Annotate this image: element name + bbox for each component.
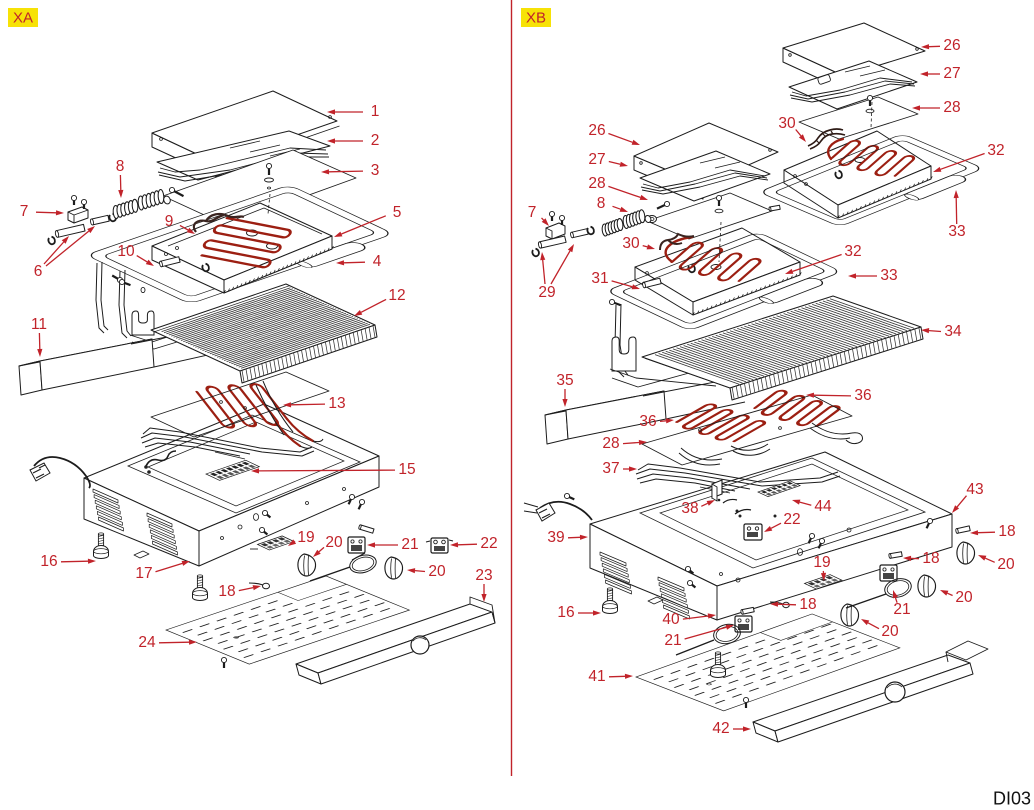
svg-text:28: 28 xyxy=(588,175,605,192)
svg-text:4: 4 xyxy=(373,253,382,270)
svg-text:39: 39 xyxy=(547,529,564,546)
svg-text:20: 20 xyxy=(428,563,446,580)
svg-text:8: 8 xyxy=(116,158,125,175)
svg-text:5: 5 xyxy=(393,204,402,221)
svg-text:35: 35 xyxy=(556,372,573,389)
svg-text:22: 22 xyxy=(480,535,497,552)
svg-text:20: 20 xyxy=(325,534,343,551)
svg-text:XA: XA xyxy=(13,9,33,26)
svg-text:23: 23 xyxy=(475,567,492,584)
svg-text:6: 6 xyxy=(34,263,43,280)
svg-text:41: 41 xyxy=(588,668,605,685)
svg-text:15: 15 xyxy=(398,461,415,478)
svg-text:16: 16 xyxy=(40,553,57,570)
svg-text:32: 32 xyxy=(987,142,1004,159)
svg-text:44: 44 xyxy=(814,498,832,515)
svg-text:32: 32 xyxy=(844,243,861,260)
svg-text:DI03: DI03 xyxy=(993,788,1031,808)
svg-text:16: 16 xyxy=(557,604,574,621)
svg-text:13: 13 xyxy=(328,395,345,412)
svg-text:18: 18 xyxy=(922,550,939,567)
svg-text:36: 36 xyxy=(854,387,871,404)
svg-text:21: 21 xyxy=(893,601,910,618)
svg-text:34: 34 xyxy=(944,323,962,340)
svg-text:31: 31 xyxy=(591,270,608,287)
svg-text:11: 11 xyxy=(31,316,47,333)
svg-text:20: 20 xyxy=(955,589,973,606)
svg-text:26: 26 xyxy=(943,37,960,54)
svg-text:38: 38 xyxy=(681,500,698,517)
svg-text:21: 21 xyxy=(401,536,418,553)
svg-text:7: 7 xyxy=(528,204,537,221)
svg-text:21: 21 xyxy=(664,632,681,649)
svg-text:18: 18 xyxy=(799,596,816,613)
svg-text:20: 20 xyxy=(881,623,899,640)
svg-text:10: 10 xyxy=(117,243,135,260)
svg-text:43: 43 xyxy=(966,481,983,498)
svg-text:XB: XB xyxy=(526,9,546,26)
svg-text:9: 9 xyxy=(165,213,174,230)
svg-text:7: 7 xyxy=(20,203,29,220)
svg-text:19: 19 xyxy=(813,554,830,571)
svg-text:33: 33 xyxy=(948,223,965,240)
svg-text:2: 2 xyxy=(371,132,380,149)
svg-text:17: 17 xyxy=(135,565,152,582)
svg-text:27: 27 xyxy=(943,65,960,82)
svg-text:40: 40 xyxy=(662,611,680,628)
svg-text:36: 36 xyxy=(639,413,656,430)
svg-text:29: 29 xyxy=(538,284,555,301)
svg-text:19: 19 xyxy=(297,529,314,546)
svg-text:30: 30 xyxy=(622,235,640,252)
svg-text:12: 12 xyxy=(388,287,405,304)
svg-text:37: 37 xyxy=(602,460,619,477)
svg-text:28: 28 xyxy=(602,435,619,452)
svg-text:20: 20 xyxy=(997,556,1015,573)
svg-text:28: 28 xyxy=(943,99,960,116)
svg-text:26: 26 xyxy=(588,122,605,139)
svg-text:42: 42 xyxy=(712,720,729,737)
svg-text:18: 18 xyxy=(998,523,1015,540)
svg-text:33: 33 xyxy=(880,267,897,284)
svg-text:27: 27 xyxy=(588,151,605,168)
svg-text:3: 3 xyxy=(371,162,380,179)
svg-text:30: 30 xyxy=(778,115,796,132)
svg-text:8: 8 xyxy=(597,195,606,212)
svg-text:22: 22 xyxy=(783,511,800,528)
svg-text:1: 1 xyxy=(371,103,380,120)
svg-text:18: 18 xyxy=(218,583,235,600)
svg-text:24: 24 xyxy=(138,634,156,651)
